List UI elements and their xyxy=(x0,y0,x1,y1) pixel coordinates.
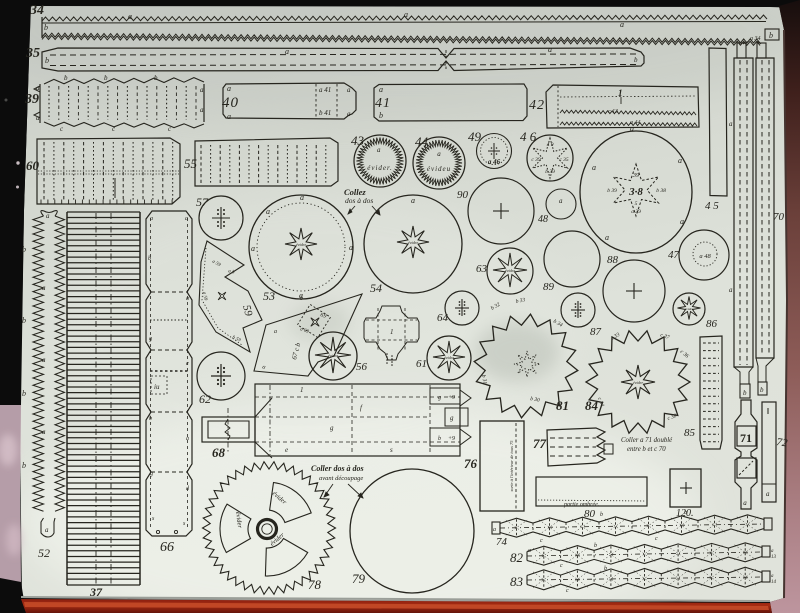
svg-text:41: 41 xyxy=(375,96,391,111)
svg-text:a: a xyxy=(227,84,231,93)
svg-text:b 38: b 38 xyxy=(656,188,666,194)
svg-text:b: b xyxy=(634,56,638,64)
svg-text:84: 84 xyxy=(585,398,599,413)
svg-text:a: a xyxy=(186,436,189,442)
svg-text:a 46: a 46 xyxy=(488,158,501,166)
svg-text:évider: évider xyxy=(296,242,306,247)
svg-text:b: b xyxy=(154,74,158,82)
svg-text:1: 1 xyxy=(300,386,304,394)
svg-text:a 34: a 34 xyxy=(750,35,761,42)
svg-text:a: a xyxy=(743,499,747,507)
svg-text:a: a xyxy=(128,12,132,21)
svg-text:b: b xyxy=(600,512,603,518)
svg-text:a: a xyxy=(42,356,46,364)
svg-text:78: 78 xyxy=(308,577,322,592)
svg-text:b 41: b 41 xyxy=(319,109,331,117)
svg-text:évider.: évider. xyxy=(367,164,392,172)
svg-text:e: e xyxy=(186,361,189,367)
svg-text:g: g xyxy=(330,424,334,432)
svg-text:c 39: c 39 xyxy=(531,157,541,163)
svg-text:70: 70 xyxy=(773,211,785,223)
svg-text:dos à dos: dos à dos xyxy=(345,196,373,205)
svg-text:56: 56 xyxy=(356,361,368,373)
svg-text:66: 66 xyxy=(160,540,174,555)
svg-text:b: b xyxy=(149,416,152,422)
svg-text:a: a xyxy=(493,527,496,533)
svg-text:b: b xyxy=(22,316,26,325)
svg-text:34: 34 xyxy=(29,3,44,18)
svg-text:3·8: 3·8 xyxy=(628,186,643,198)
svg-text:b 39: b 39 xyxy=(545,169,555,175)
svg-text:b: b xyxy=(300,296,303,302)
svg-text:e: e xyxy=(285,446,288,454)
svg-text:a: a xyxy=(300,193,304,202)
svg-text:+9: +9 xyxy=(448,395,455,401)
svg-text:a: a xyxy=(729,120,733,128)
svg-text:g: g xyxy=(450,414,454,422)
svg-text:4 9: 4 9 xyxy=(547,141,554,148)
svg-text:47: 47 xyxy=(668,249,680,261)
svg-text:g: g xyxy=(150,471,153,477)
svg-text:a: a xyxy=(186,296,189,302)
svg-text:a: a xyxy=(227,112,231,121)
svg-text:a: a xyxy=(437,150,441,158)
svg-text:évideu: évideu xyxy=(427,165,451,173)
svg-text:a: a xyxy=(592,163,596,172)
svg-text:a: a xyxy=(347,86,351,94)
svg-text:b: b xyxy=(760,386,764,394)
svg-text:b: b xyxy=(684,510,687,516)
svg-text:a: a xyxy=(349,243,353,252)
svg-text:81: 81 xyxy=(556,398,569,413)
svg-text:a: a xyxy=(411,196,415,205)
svg-text:37: 37 xyxy=(89,585,103,599)
svg-text:b: b xyxy=(45,56,49,65)
svg-text:b: b xyxy=(64,74,68,82)
svg-text:13: 13 xyxy=(771,555,777,560)
svg-text:a 41: a 41 xyxy=(319,86,331,94)
svg-text:évider: évider xyxy=(408,240,418,245)
svg-text:a: a xyxy=(347,110,351,118)
svg-text:s: s xyxy=(390,446,393,454)
svg-text:88: 88 xyxy=(607,254,619,266)
svg-text:b: b xyxy=(379,111,383,120)
svg-text:a: a xyxy=(266,207,270,216)
svg-text:b: b xyxy=(604,566,607,572)
svg-text:a: a xyxy=(680,217,684,226)
svg-text:a: a xyxy=(274,329,277,335)
svg-text:48: 48 xyxy=(538,214,548,225)
svg-text:a: a xyxy=(605,233,609,242)
svg-text:82: 82 xyxy=(510,550,524,565)
svg-text:a: a xyxy=(36,114,40,122)
svg-text:39: 39 xyxy=(24,92,39,107)
svg-text:a: a xyxy=(150,216,153,222)
svg-text:1: 1 xyxy=(390,328,394,336)
svg-text:79: 79 xyxy=(352,571,366,586)
svg-text:14: 14 xyxy=(771,580,777,585)
svg-text:a 39: a 39 xyxy=(631,209,641,215)
svg-text:b: b xyxy=(44,23,48,32)
svg-text:a: a xyxy=(42,284,46,292)
svg-text:a: a xyxy=(200,106,204,114)
svg-text:b: b xyxy=(22,389,26,398)
svg-text:b: b xyxy=(104,74,108,82)
svg-text:avant découpage: avant découpage xyxy=(319,475,363,482)
svg-text:b 39: b 39 xyxy=(607,188,617,194)
svg-text:63: 63 xyxy=(476,263,488,275)
svg-text:b: b xyxy=(438,436,441,442)
svg-text:a: a xyxy=(630,124,634,133)
svg-text:83: 83 xyxy=(510,574,524,589)
svg-text:a: a xyxy=(678,156,682,165)
svg-text:61: 61 xyxy=(416,358,427,370)
svg-text:iu: iu xyxy=(154,383,160,391)
svg-text:b: b xyxy=(22,245,26,254)
svg-text:évider: évider xyxy=(633,380,643,385)
svg-text:74: 74 xyxy=(496,536,508,548)
svg-text:a: a xyxy=(285,47,289,56)
svg-text:54: 54 xyxy=(370,281,382,295)
svg-text:39: 39 xyxy=(632,173,639,179)
svg-text:c 35: c 35 xyxy=(559,157,569,163)
svg-text:42: 42 xyxy=(529,98,545,113)
svg-text:44: 44 xyxy=(415,134,429,149)
svg-text:c: c xyxy=(540,538,543,544)
svg-text:40: 40 xyxy=(222,95,239,111)
svg-text:86: 86 xyxy=(706,318,718,330)
svg-text:76: 76 xyxy=(464,456,478,471)
svg-text:a 48: a 48 xyxy=(699,253,711,260)
svg-text:72: 72 xyxy=(776,436,789,449)
svg-text:89: 89 xyxy=(543,281,555,293)
svg-text:71: 71 xyxy=(740,431,752,445)
svg-text:g: g xyxy=(438,395,441,401)
svg-text:4 5: 4 5 xyxy=(705,200,719,212)
svg-text:a: a xyxy=(379,85,383,94)
svg-text:a: a xyxy=(377,146,381,154)
svg-text:évider: évider xyxy=(505,268,515,273)
svg-text:c: c xyxy=(560,563,563,569)
svg-text:a: a xyxy=(559,197,563,205)
svg-text:a: a xyxy=(185,216,188,222)
svg-text:b: b xyxy=(22,461,26,470)
svg-text:b: b xyxy=(769,31,773,40)
svg-text:a: a xyxy=(548,45,552,54)
svg-text:b: b xyxy=(743,389,747,397)
svg-text:85: 85 xyxy=(684,427,696,439)
svg-text:Coller dos à dos: Coller dos à dos xyxy=(311,464,364,473)
svg-text:c 13: c 13 xyxy=(608,109,618,115)
svg-text:87: 87 xyxy=(590,326,602,338)
svg-text:64: 64 xyxy=(437,312,449,324)
svg-text:5: 5 xyxy=(635,201,638,207)
svg-text:g: g xyxy=(149,336,152,342)
svg-text:a: a xyxy=(528,548,531,554)
svg-text:c: c xyxy=(655,536,658,542)
svg-text:b: b xyxy=(148,256,151,262)
svg-text:a: a xyxy=(42,428,46,436)
svg-text:35: 35 xyxy=(25,46,40,61)
svg-text:évider: évider xyxy=(685,307,694,311)
svg-text:Coller a 71 doublé: Coller a 71 doublé xyxy=(621,437,673,444)
svg-text:a: a xyxy=(404,10,408,19)
svg-text:c: c xyxy=(566,588,569,594)
svg-text:77: 77 xyxy=(533,436,547,451)
svg-text:entre b et c 70: entre b et c 70 xyxy=(627,446,666,453)
svg-text:90: 90 xyxy=(457,189,469,201)
svg-text:a: a xyxy=(45,526,49,534)
svg-text:a: a xyxy=(729,286,733,294)
svg-text:a: a xyxy=(36,84,40,92)
svg-text:a: a xyxy=(620,20,624,29)
svg-text:68: 68 xyxy=(212,445,226,460)
svg-text:a: a xyxy=(200,86,204,94)
svg-text:a: a xyxy=(46,212,50,220)
svg-text:b: b xyxy=(594,543,597,549)
svg-text:sorte à l'intérieur de tous 75: sorte à l'intérieur de tous 75 xyxy=(509,440,514,492)
svg-text:évider: évider xyxy=(444,355,454,360)
svg-text:a: a xyxy=(766,490,770,498)
svg-text:a: a xyxy=(251,244,255,253)
svg-text:+9: +9 xyxy=(448,436,455,442)
svg-text:52: 52 xyxy=(38,546,50,560)
